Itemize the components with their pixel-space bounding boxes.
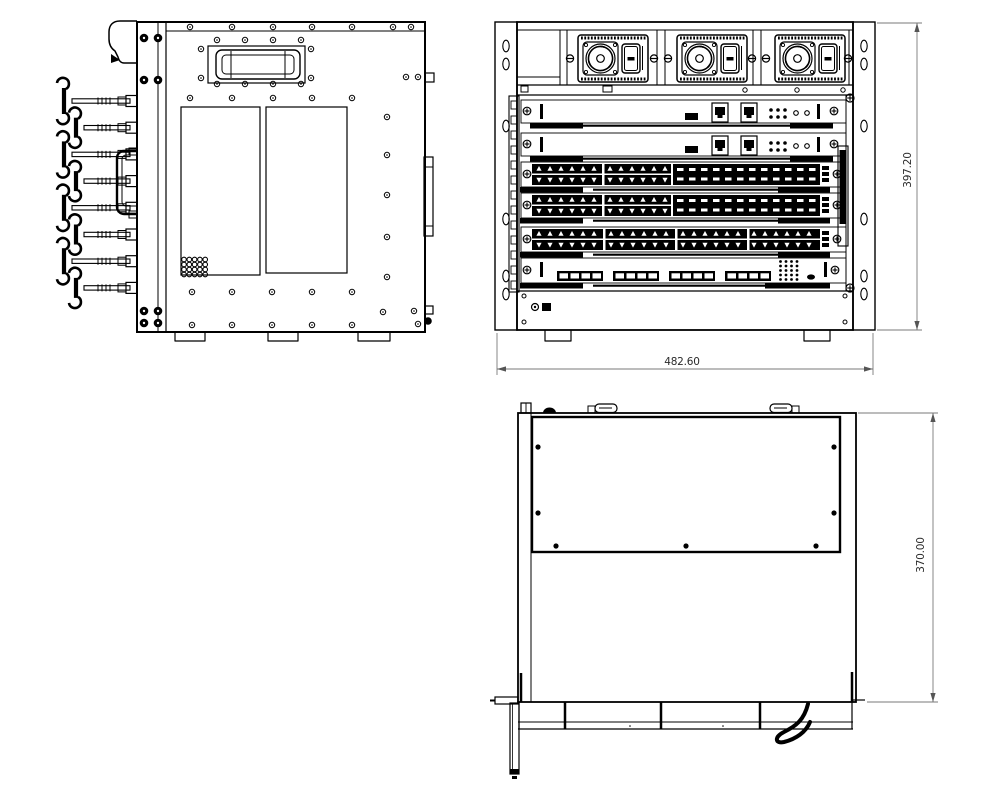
perforation — [785, 78, 787, 81]
sfp-port — [638, 273, 647, 278]
perforation — [804, 37, 806, 40]
rail-segment — [511, 161, 517, 169]
hook-mount-cap — [118, 124, 126, 132]
rj45-jack — [744, 140, 754, 151]
fan-screw — [683, 70, 686, 73]
perforation — [795, 37, 797, 40]
rivet-center — [157, 310, 159, 312]
strip-screw — [743, 88, 747, 92]
ejector-bar — [520, 283, 583, 289]
hook-curl-bottom — [57, 220, 69, 231]
sfp-port-mark — [725, 199, 732, 202]
vent-hole — [203, 267, 208, 272]
perforation — [818, 78, 820, 81]
led — [796, 278, 799, 281]
status-block — [822, 237, 829, 241]
screw-hole-center — [272, 97, 274, 99]
perforation — [644, 78, 646, 81]
rear-dome — [543, 408, 556, 414]
screw-hole-center — [351, 324, 353, 326]
rivet-center — [157, 79, 159, 81]
led — [783, 115, 787, 119]
rail-segment — [511, 281, 517, 289]
perforation — [798, 37, 800, 40]
power-inlet-slot — [825, 57, 832, 61]
sfp-port — [571, 273, 580, 278]
perforation — [743, 37, 745, 40]
perforation — [631, 37, 633, 40]
perforation — [700, 78, 702, 81]
perforation — [591, 37, 593, 40]
flange-hole — [503, 40, 509, 52]
drawing-canvas: 482.60 397.20 370.00 — [0, 0, 1003, 790]
rear-edge-fittings — [521, 403, 799, 413]
sfp-port-mark — [737, 168, 744, 171]
bracket-foot — [512, 776, 517, 779]
sfp-port — [761, 273, 770, 278]
sfp-port-mark — [713, 209, 720, 212]
screw-hole-center — [311, 291, 313, 293]
strip-notch — [603, 86, 612, 92]
perforation — [785, 37, 787, 40]
chassis-foot — [545, 330, 571, 341]
ejector-bar — [530, 156, 583, 162]
perforation — [693, 78, 695, 81]
ejector-bar — [790, 156, 833, 162]
led — [796, 269, 799, 272]
perforation — [791, 37, 793, 40]
side-panel — [137, 22, 425, 332]
perforation — [804, 78, 806, 81]
panel-screw — [843, 294, 847, 298]
perforation — [733, 37, 735, 40]
hook-mount-cap — [118, 257, 126, 265]
fan-hub — [696, 55, 704, 63]
vent-hole — [182, 257, 187, 262]
screw-hole-center — [382, 311, 384, 313]
perforation — [730, 78, 732, 81]
cable-hook — [57, 185, 137, 231]
perforation — [640, 78, 642, 81]
perforation — [834, 37, 836, 40]
handle-grip — [222, 55, 294, 74]
led — [790, 260, 793, 263]
flange-hole — [503, 270, 509, 282]
sfp-port-mark — [701, 199, 708, 202]
sfp-port-mark — [797, 178, 804, 181]
vent-panel — [532, 417, 840, 552]
perforation — [841, 78, 843, 81]
perforation — [611, 78, 613, 81]
card-slot-6-uplink-card-sfp — [520, 258, 846, 289]
perforation — [637, 37, 639, 40]
screw-hole-center — [216, 39, 218, 41]
status-block — [822, 166, 829, 170]
vent-hole — [198, 262, 203, 267]
perforation — [837, 37, 839, 40]
cable-hook — [57, 238, 137, 284]
hook-mount-block — [126, 202, 137, 213]
screw-hole-center — [386, 276, 388, 278]
hook-curl-bottom — [69, 137, 81, 148]
screw-hole-center — [244, 39, 246, 41]
led — [796, 274, 799, 277]
sfp-port-mark — [761, 178, 768, 181]
sfp-port — [649, 273, 658, 278]
latch-base — [792, 406, 799, 413]
screw-hole-center — [417, 76, 419, 78]
led — [796, 260, 799, 263]
perforation — [594, 37, 596, 40]
rail-segment — [511, 251, 517, 259]
led — [785, 265, 788, 268]
hook-curl-top — [69, 268, 81, 279]
port-group-gap — [603, 229, 606, 250]
top-view — [490, 403, 865, 779]
sfp-port-mark — [773, 199, 780, 202]
hook-mount-block — [126, 122, 137, 133]
card-slot-4-line-card-mixed — [520, 193, 846, 224]
led — [785, 274, 788, 277]
screw-hole-center — [392, 26, 394, 28]
perforation — [801, 37, 803, 40]
perforation — [713, 78, 715, 81]
dimension-front-width-label: 482.60 — [664, 356, 700, 368]
perforation — [726, 37, 728, 40]
carry-handle — [208, 46, 305, 83]
led — [769, 108, 773, 112]
sfp-port-mark — [713, 178, 720, 181]
screw-hole-center — [200, 48, 202, 50]
perforation — [683, 37, 685, 40]
screw-hole-center — [189, 26, 191, 28]
dim-arrowhead — [497, 366, 506, 371]
perforation — [791, 78, 793, 81]
led — [790, 269, 793, 272]
perforation — [811, 78, 813, 81]
vent-hole — [192, 262, 197, 267]
flange-hole — [861, 40, 867, 52]
strip-notch — [521, 86, 528, 92]
screw-hole-center — [272, 26, 274, 28]
fan-hub — [794, 55, 802, 63]
reset-button — [794, 144, 799, 149]
sfp-port-mark — [785, 168, 792, 171]
perforation — [778, 78, 780, 81]
screw-hole-center — [272, 39, 274, 41]
perforation — [687, 78, 689, 81]
screw-hole-center — [417, 323, 419, 325]
led — [790, 265, 793, 268]
sfp-port-mark — [689, 168, 696, 171]
perforation — [713, 37, 715, 40]
rail-segment — [511, 146, 517, 154]
hook-curl-top — [69, 214, 81, 225]
perforation — [690, 37, 692, 40]
fan-ring — [685, 44, 714, 73]
led — [783, 141, 787, 145]
sfp-port-mark — [785, 209, 792, 212]
sfp-port-mark — [689, 178, 696, 181]
bezel-dot — [629, 725, 631, 727]
rail-segment — [511, 191, 517, 199]
perforation — [644, 37, 646, 40]
vent-hole-cluster — [182, 257, 208, 277]
screw-hole-center — [311, 97, 313, 99]
card-tick — [824, 262, 827, 277]
sfp-port-mark — [773, 178, 780, 181]
sfp-port-mark — [749, 209, 756, 212]
perforation — [624, 78, 626, 81]
perforation — [703, 37, 705, 40]
fan-ring — [783, 44, 812, 73]
vent-panel-outline — [532, 417, 840, 552]
bracket-arm — [510, 703, 519, 774]
fan-screw — [683, 43, 686, 46]
perforation — [627, 78, 629, 81]
hook-curl-top — [57, 185, 69, 196]
vent-hole — [187, 267, 192, 272]
hook-post — [72, 99, 130, 103]
power-inlet-slot — [628, 57, 635, 61]
sfp-port-mark — [677, 199, 684, 202]
ejector-bar — [520, 187, 583, 193]
cable-hook — [57, 131, 137, 177]
perforation — [634, 78, 636, 81]
rivet-center — [143, 79, 145, 81]
ejector-bar — [790, 123, 833, 129]
fan-ring — [586, 44, 615, 73]
perforation — [743, 78, 745, 81]
perforation — [611, 37, 613, 40]
screw-hole-center — [386, 236, 388, 238]
flange-rivets — [140, 34, 163, 328]
led — [783, 148, 787, 152]
perforation — [598, 37, 600, 40]
fan-hub — [597, 55, 605, 63]
perforation — [821, 78, 823, 81]
sfp-port-block — [673, 164, 820, 185]
perforation — [703, 78, 705, 81]
perforation — [808, 78, 810, 81]
led — [776, 148, 780, 152]
flange-hole — [503, 213, 509, 225]
perforation — [697, 37, 699, 40]
status-block — [822, 243, 829, 247]
rail-segment — [511, 101, 517, 109]
screw-hole-center — [351, 291, 353, 293]
reset-button — [805, 144, 810, 149]
front-view — [495, 22, 875, 341]
perforation — [710, 37, 712, 40]
three-view-drawing: 482.60 397.20 370.00 — [0, 0, 1003, 790]
fan-screw — [584, 43, 587, 46]
flange-hole — [861, 288, 867, 300]
rivet-center — [157, 37, 159, 39]
perforation — [739, 78, 741, 81]
strip-screw — [795, 88, 799, 92]
dimension-top-depth-label: 370.00 — [915, 537, 927, 573]
hook-mount-cap — [118, 284, 126, 292]
screw-hole-center — [216, 83, 218, 85]
sfp-port-mark — [761, 168, 768, 171]
screw-hole-center — [410, 26, 412, 28]
perforation — [617, 37, 619, 40]
perforation — [687, 37, 689, 40]
rivet-center — [143, 322, 145, 324]
screw-hole-center — [271, 324, 273, 326]
dim-arrowhead — [864, 366, 873, 371]
label-block — [542, 303, 551, 311]
port-group-gap — [675, 229, 678, 250]
rivet-center — [157, 322, 159, 324]
fan-screw — [810, 43, 813, 46]
led — [785, 278, 788, 281]
perforation — [598, 78, 600, 81]
screw-hole-center — [200, 77, 202, 79]
rail-segment — [511, 206, 517, 214]
screw-hole-center — [272, 83, 274, 85]
hook-curl-top — [57, 131, 69, 142]
rivet-center — [143, 310, 145, 312]
sfp-port-mark — [809, 199, 816, 202]
led — [776, 108, 780, 112]
perforation — [621, 78, 623, 81]
sfp-port — [750, 273, 759, 278]
perforation — [710, 78, 712, 81]
rail-segment — [511, 221, 517, 229]
screw-hole-center — [386, 194, 388, 196]
vent-panel-screw — [813, 543, 818, 548]
led — [776, 141, 780, 145]
perforation — [828, 78, 830, 81]
usb-port — [685, 146, 698, 153]
perforation — [588, 78, 590, 81]
screw-hole-center — [189, 97, 191, 99]
perforation — [588, 37, 590, 40]
perforation — [736, 78, 738, 81]
ejector-bar — [778, 218, 830, 224]
perforation — [693, 37, 695, 40]
perforation — [788, 37, 790, 40]
sfp-port-mark — [749, 199, 756, 202]
screw-hole-center — [271, 291, 273, 293]
hook-mount-block — [126, 282, 137, 293]
cable-hook — [69, 161, 137, 201]
cable-hook — [57, 78, 137, 124]
perforation — [841, 37, 843, 40]
status-block — [822, 172, 829, 176]
hook-curl-bottom — [69, 297, 81, 308]
screw-hole-center — [300, 83, 302, 85]
chassis-foot — [268, 332, 298, 341]
led — [779, 260, 782, 263]
hook-mount-block — [126, 176, 137, 187]
perforation — [818, 37, 820, 40]
perforation — [808, 37, 810, 40]
led — [776, 115, 780, 119]
hook-curl-top — [57, 78, 69, 89]
panel-screw — [843, 320, 847, 324]
perforation — [640, 37, 642, 40]
perforation — [637, 78, 639, 81]
vent-hole — [198, 267, 203, 272]
side-access-panel — [181, 107, 260, 275]
port-group-gap — [602, 164, 605, 185]
perforation — [837, 78, 839, 81]
vent-panel-screw — [831, 444, 836, 449]
dim-arrowhead — [930, 413, 935, 422]
side-body-outline — [137, 22, 425, 332]
screw-hole-center — [405, 76, 407, 78]
flange-hole — [861, 58, 867, 70]
bottom-blank-panel — [517, 291, 853, 324]
fan-screw — [613, 43, 616, 46]
flange-hole — [861, 213, 867, 225]
port-block-divider — [532, 174, 671, 176]
sfp-port — [683, 273, 692, 278]
vent-hole — [192, 267, 197, 272]
rj45-jack — [744, 107, 754, 118]
card-slots — [520, 100, 846, 289]
sfp-port-mark — [689, 199, 696, 202]
led — [779, 269, 782, 272]
led — [769, 115, 773, 119]
flange-hole — [861, 270, 867, 282]
ejector-bar — [765, 283, 830, 289]
vent-hole — [182, 262, 187, 267]
screw-hole-center — [191, 291, 193, 293]
fan-screw — [613, 70, 616, 73]
perforation — [821, 37, 823, 40]
screw-hole-center — [413, 310, 415, 312]
hook-curl-bottom — [69, 244, 81, 255]
hook-post — [72, 152, 130, 156]
perforation — [604, 37, 606, 40]
latch-base — [588, 406, 595, 413]
vent-panel-screw — [553, 543, 558, 548]
sfp-port-mark — [797, 199, 804, 202]
grounding-center — [534, 306, 536, 308]
dim-arrowhead — [914, 23, 919, 32]
sfp-port-mark — [713, 168, 720, 171]
screw-hole-center — [386, 116, 388, 118]
perforation — [720, 78, 722, 81]
sfp-port — [593, 273, 602, 278]
screw-hole-center — [191, 324, 193, 326]
perforation — [788, 78, 790, 81]
card-tick — [540, 137, 543, 152]
hook-curl-bottom — [57, 166, 69, 177]
vent-panel-screw — [535, 510, 540, 515]
hook-post — [84, 286, 130, 290]
sfp-port-mark — [725, 178, 732, 181]
left-bracket — [490, 697, 520, 779]
screw-hole-center — [351, 97, 353, 99]
perforation — [706, 78, 708, 81]
reset-button — [805, 111, 810, 116]
sfp-port-mark — [749, 168, 756, 171]
fan-screw — [584, 70, 587, 73]
sfp-port-mark — [701, 168, 708, 171]
chassis-foot — [804, 330, 830, 341]
screw-hole-center — [311, 26, 313, 28]
ejector-bar — [520, 218, 583, 224]
hook-mount-block — [126, 96, 137, 107]
sfp-port-mark — [773, 168, 780, 171]
fan-screw — [712, 70, 715, 73]
screw-hole-center — [300, 39, 302, 41]
